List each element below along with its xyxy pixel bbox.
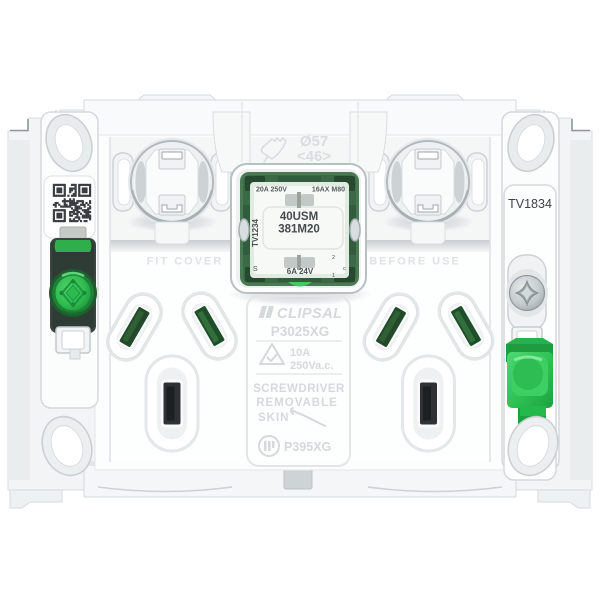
svg-text:REMOVABLE: REMOVABLE [256, 397, 338, 409]
svg-text:381M20: 381M20 [278, 224, 320, 236]
svg-text:20A 250V: 20A 250V [256, 187, 287, 194]
svg-text:SKIN: SKIN [258, 412, 289, 424]
svg-text:1: 1 [332, 273, 335, 279]
svg-text:FIT COVER: FIT COVER [147, 256, 224, 268]
svg-text:P3025XG: P3025XG [271, 324, 330, 339]
svg-text:6A 24V: 6A 24V [287, 267, 314, 276]
svg-text:TV1834: TV1834 [508, 197, 552, 211]
svg-text:<46>: <46> [297, 148, 331, 165]
svg-text:2: 2 [332, 255, 335, 261]
svg-text:S: S [253, 266, 258, 273]
svg-text:16AX M80: 16AX M80 [312, 187, 345, 194]
svg-text:SCREWDRIVER: SCREWDRIVER [253, 383, 345, 395]
svg-text:P395XG: P395XG [284, 440, 331, 454]
svg-text:BEFORE USE: BEFORE USE [369, 256, 461, 268]
svg-text:250Va.c.: 250Va.c. [290, 360, 333, 372]
svg-text:40USM: 40USM [280, 211, 318, 223]
svg-text:10A: 10A [290, 347, 310, 359]
svg-text:TV1234: TV1234 [251, 218, 260, 247]
svg-text:c: c [343, 266, 346, 272]
svg-text:CLIPSAL: CLIPSAL [277, 306, 343, 322]
